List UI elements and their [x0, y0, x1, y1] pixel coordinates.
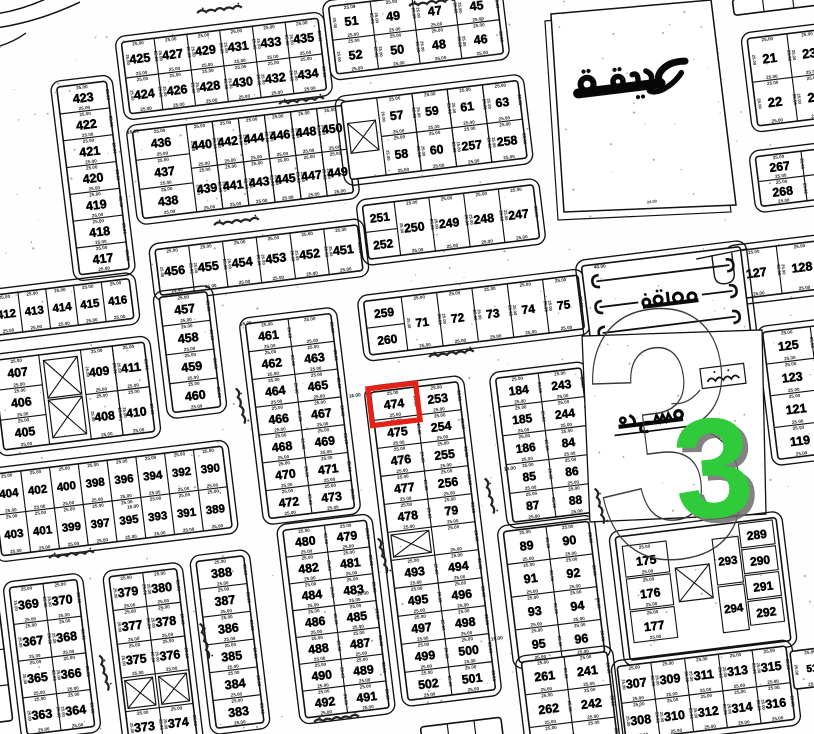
svg-text:477: 477	[393, 480, 415, 496]
svg-text:375: 375	[125, 651, 147, 667]
svg-text:256: 256	[437, 475, 459, 491]
svg-text:250: 250	[403, 219, 425, 235]
svg-text:454: 454	[231, 254, 253, 270]
svg-text:75: 75	[556, 297, 571, 313]
svg-text:481: 481	[339, 555, 361, 571]
svg-text:364: 364	[64, 702, 86, 718]
svg-text:462: 462	[261, 355, 283, 371]
svg-text:493: 493	[404, 564, 426, 580]
svg-text:411: 411	[120, 360, 142, 376]
svg-text:242: 242	[580, 696, 602, 712]
svg-text:437: 437	[154, 164, 176, 180]
svg-text:436: 436	[150, 135, 172, 151]
svg-text:308: 308	[630, 712, 652, 728]
svg-text:50: 50	[390, 42, 406, 58]
svg-text:489: 489	[352, 662, 374, 678]
svg-text:125: 125	[777, 338, 799, 354]
svg-text:405: 405	[14, 424, 36, 440]
svg-text:52: 52	[348, 47, 364, 63]
svg-text:470: 470	[274, 466, 296, 482]
svg-text:484: 484	[301, 587, 323, 603]
svg-text:474: 474	[383, 396, 405, 412]
svg-text:25.00: 25.00	[808, 681, 814, 687]
svg-text:482: 482	[298, 560, 320, 576]
svg-text:418: 418	[88, 224, 110, 240]
svg-text:415: 415	[80, 297, 101, 311]
svg-text:391: 391	[176, 506, 197, 520]
svg-text:410: 410	[125, 404, 147, 420]
svg-text:57: 57	[389, 108, 404, 124]
svg-text:22: 22	[767, 94, 783, 111]
svg-text:398: 398	[85, 476, 106, 490]
svg-text:429: 429	[194, 42, 216, 58]
svg-text:441: 441	[222, 177, 244, 193]
svg-text:396: 396	[114, 473, 135, 487]
svg-text:451: 451	[332, 242, 354, 258]
svg-text:363: 363	[31, 706, 53, 722]
svg-text:413: 413	[24, 304, 45, 318]
svg-text:494: 494	[447, 559, 469, 575]
svg-text:399: 399	[61, 521, 82, 535]
svg-text:408: 408	[94, 408, 116, 424]
svg-text:427: 427	[161, 46, 183, 62]
svg-text:119: 119	[789, 433, 811, 449]
svg-text:96: 96	[574, 631, 590, 647]
svg-text:485: 485	[346, 609, 368, 625]
svg-text:90: 90	[562, 533, 578, 549]
svg-text:499: 499	[414, 648, 436, 664]
svg-text:492: 492	[314, 694, 336, 710]
svg-text:442: 442	[217, 133, 239, 149]
svg-text:378: 378	[155, 613, 177, 629]
svg-text:58: 58	[394, 146, 409, 162]
svg-text:314: 314	[731, 699, 753, 715]
svg-text:471: 471	[317, 461, 339, 477]
svg-text:312: 312	[697, 704, 719, 720]
svg-text:497: 497	[410, 620, 432, 636]
svg-text:383: 383	[227, 704, 249, 720]
svg-text:464: 464	[264, 383, 286, 399]
svg-text:452: 452	[298, 246, 320, 262]
svg-text:438: 438	[157, 193, 179, 209]
svg-text:479: 479	[336, 528, 358, 544]
svg-text:258: 258	[496, 133, 518, 149]
svg-text:495: 495	[407, 592, 429, 608]
svg-text:374: 374	[167, 715, 189, 731]
svg-text:243: 243	[551, 377, 573, 393]
svg-text:249: 249	[438, 215, 460, 231]
svg-text:316: 316	[765, 695, 787, 711]
svg-text:386: 386	[217, 620, 239, 636]
svg-text:244: 244	[554, 406, 576, 422]
svg-text:491: 491	[356, 689, 378, 705]
svg-text:252: 252	[372, 236, 394, 252]
svg-text:439: 439	[196, 180, 218, 196]
svg-text:473: 473	[321, 489, 343, 505]
svg-text:486: 486	[304, 614, 326, 630]
svg-text:91: 91	[523, 571, 539, 587]
svg-text:94: 94	[570, 598, 586, 614]
svg-text:86: 86	[564, 464, 579, 480]
svg-text:393: 393	[148, 510, 169, 524]
svg-text:60: 60	[429, 142, 444, 158]
svg-text:428: 428	[199, 78, 221, 94]
svg-text:426: 426	[166, 82, 188, 98]
svg-text:407: 407	[7, 364, 29, 380]
svg-text:423: 423	[72, 90, 94, 106]
svg-text:443: 443	[248, 174, 270, 190]
svg-text:433: 433	[260, 34, 282, 50]
svg-text:24: 24	[807, 89, 814, 106]
svg-text:61: 61	[459, 99, 474, 115]
svg-text:387: 387	[214, 593, 236, 609]
svg-text:379: 379	[117, 584, 139, 600]
svg-text:73: 73	[485, 306, 500, 322]
svg-text:241: 241	[576, 663, 598, 679]
svg-text:84: 84	[561, 435, 576, 451]
svg-text:440: 440	[191, 137, 213, 153]
svg-text:435: 435	[292, 30, 314, 46]
svg-text:416: 416	[107, 294, 128, 308]
svg-text:186: 186	[515, 440, 537, 456]
svg-text:431: 431	[227, 38, 249, 54]
svg-text:450: 450	[321, 121, 343, 137]
svg-text:93: 93	[527, 604, 543, 620]
svg-text:25.00: 25.00	[806, 75, 814, 81]
svg-text:465: 465	[307, 378, 329, 394]
svg-text:432: 432	[264, 70, 286, 86]
svg-text:446: 446	[269, 127, 291, 143]
svg-text:496: 496	[451, 587, 473, 603]
svg-text:95: 95	[531, 636, 547, 652]
svg-text:406: 406	[10, 394, 32, 410]
svg-text:255: 255	[434, 447, 456, 463]
svg-text:380: 380	[150, 580, 172, 596]
svg-text:46: 46	[473, 32, 489, 48]
svg-text:447: 447	[300, 167, 322, 183]
svg-text:262: 262	[538, 701, 560, 717]
svg-text:365: 365	[26, 670, 48, 686]
svg-text:251: 251	[369, 209, 391, 225]
svg-text:422: 422	[75, 117, 97, 133]
svg-text:445: 445	[274, 171, 296, 187]
svg-text:59: 59	[424, 103, 439, 119]
svg-text:121: 121	[785, 401, 807, 417]
svg-text:89: 89	[519, 538, 535, 554]
svg-text:45: 45	[469, 0, 485, 14]
svg-text:488: 488	[307, 641, 329, 657]
svg-text:3: 3	[667, 386, 760, 551]
svg-text:267: 267	[769, 159, 791, 175]
svg-text:430: 430	[231, 74, 253, 90]
svg-text:366: 366	[60, 666, 82, 682]
svg-text:417: 417	[92, 251, 114, 267]
svg-text:400: 400	[56, 480, 77, 494]
svg-text:476: 476	[390, 452, 412, 468]
svg-text:128: 128	[791, 259, 813, 275]
svg-text:389: 389	[205, 503, 226, 517]
svg-text:467: 467	[310, 406, 332, 422]
svg-text:253: 253	[427, 391, 449, 407]
svg-text:309: 309	[659, 671, 681, 687]
svg-text:472: 472	[278, 494, 300, 510]
svg-text:392: 392	[171, 466, 192, 480]
svg-text:458: 458	[177, 330, 199, 346]
svg-text:475: 475	[386, 424, 408, 440]
svg-text:74: 74	[521, 302, 536, 318]
svg-text:480: 480	[294, 533, 316, 549]
svg-text:501: 501	[461, 670, 483, 686]
svg-text:25.00: 25.00	[806, 69, 814, 75]
svg-text:498: 498	[454, 614, 476, 630]
svg-text:456: 456	[163, 263, 185, 279]
svg-text:21: 21	[762, 50, 778, 67]
svg-text:47: 47	[427, 3, 443, 19]
svg-text:85: 85	[522, 469, 537, 485]
svg-text:397: 397	[90, 517, 111, 531]
svg-text:421: 421	[79, 143, 101, 159]
svg-text:311: 311	[693, 667, 715, 683]
svg-text:425: 425	[129, 50, 151, 66]
svg-text:412: 412	[0, 308, 17, 322]
svg-text:385: 385	[221, 648, 243, 664]
svg-text:388: 388	[210, 565, 232, 581]
svg-text:461: 461	[257, 327, 279, 343]
svg-text:424: 424	[133, 86, 155, 102]
svg-text:310: 310	[663, 708, 685, 724]
svg-text:63: 63	[495, 95, 510, 111]
svg-text:434: 434	[297, 66, 319, 82]
svg-text:369: 369	[17, 596, 39, 612]
svg-text:260: 260	[377, 332, 399, 348]
svg-text:376: 376	[159, 647, 181, 663]
svg-text:401: 401	[32, 524, 53, 538]
svg-text:92: 92	[566, 566, 582, 582]
svg-text:261: 261	[534, 668, 556, 684]
svg-text:254: 254	[430, 419, 452, 435]
svg-text:370: 370	[51, 592, 73, 608]
svg-text:468: 468	[271, 439, 293, 455]
svg-text:384: 384	[224, 676, 246, 692]
svg-text:500: 500	[458, 642, 480, 658]
svg-text:463: 463	[303, 350, 325, 366]
svg-text:123: 123	[781, 369, 803, 385]
svg-text:23: 23	[801, 45, 814, 62]
svg-text:453: 453	[265, 250, 287, 266]
svg-text:315: 315	[760, 659, 782, 675]
svg-text:51: 51	[344, 13, 360, 29]
svg-text:403: 403	[4, 528, 25, 542]
svg-text:460: 460	[184, 387, 206, 403]
svg-text:184: 184	[508, 382, 530, 398]
svg-text:87: 87	[525, 498, 540, 514]
svg-text:466: 466	[268, 411, 290, 427]
svg-text:455: 455	[197, 259, 219, 275]
svg-text:478: 478	[397, 508, 419, 524]
svg-text:367: 367	[22, 633, 44, 649]
svg-text:469: 469	[314, 433, 336, 449]
svg-text:307: 307	[625, 675, 647, 691]
svg-text:313: 313	[726, 663, 748, 679]
svg-text:48: 48	[431, 37, 447, 53]
svg-text:448: 448	[295, 124, 317, 140]
svg-text:72: 72	[450, 310, 465, 326]
svg-text:404: 404	[0, 487, 20, 501]
svg-text:449: 449	[327, 164, 349, 180]
svg-text:420: 420	[82, 170, 104, 186]
svg-text:419: 419	[85, 197, 107, 213]
svg-text:185: 185	[511, 411, 533, 427]
svg-text:71: 71	[415, 315, 430, 331]
svg-text:79: 79	[444, 503, 459, 519]
svg-text:490: 490	[311, 667, 333, 683]
svg-text:394: 394	[143, 469, 164, 483]
svg-text:248: 248	[473, 211, 495, 227]
svg-text:377: 377	[121, 618, 143, 634]
svg-text:457: 457	[174, 301, 196, 317]
svg-text:373: 373	[133, 719, 155, 734]
svg-text:414: 414	[52, 301, 73, 315]
svg-text:409: 409	[88, 364, 110, 380]
svg-text:257: 257	[461, 137, 483, 153]
svg-text:368: 368	[55, 629, 77, 645]
svg-text:459: 459	[181, 359, 203, 375]
svg-text:395: 395	[119, 514, 140, 528]
svg-text:25.00: 25.00	[804, 649, 814, 655]
svg-text:259: 259	[373, 305, 395, 321]
svg-text:502: 502	[417, 676, 439, 692]
svg-text:268: 268	[772, 183, 794, 199]
svg-text:444: 444	[243, 130, 265, 146]
svg-text:88: 88	[568, 492, 583, 508]
svg-text:49: 49	[385, 8, 401, 24]
svg-text:487: 487	[349, 635, 371, 651]
svg-text:402: 402	[27, 484, 48, 498]
svg-text:247: 247	[508, 206, 530, 222]
